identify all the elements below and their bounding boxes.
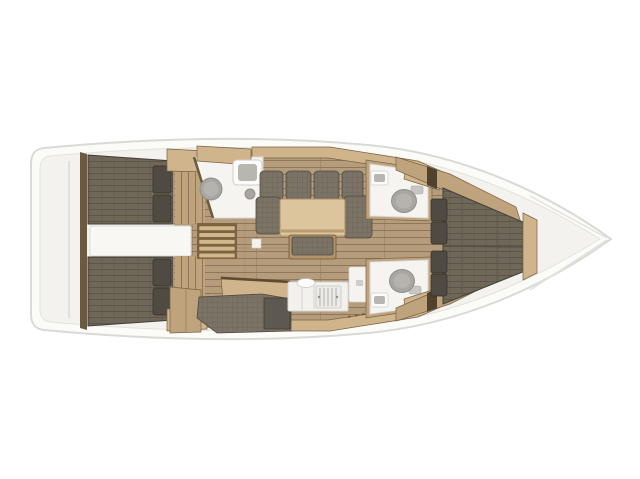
engine-compartment-box — [90, 226, 191, 256]
dark-hatch — [264, 298, 290, 329]
pillow — [431, 222, 447, 244]
fridge-handle — [356, 280, 363, 286]
companionway-ladder — [197, 223, 237, 259]
sofa-back-cushion — [314, 171, 339, 200]
berth-foot-trim — [523, 213, 537, 280]
shower-sink-bowl — [204, 182, 219, 197]
pillow — [431, 274, 447, 296]
door-post-top — [427, 166, 437, 189]
pillow — [153, 259, 171, 286]
yacht-layout-canvas — [0, 0, 640, 479]
toilet-bowl — [396, 194, 413, 209]
pillow — [153, 195, 171, 222]
sofa-back-cushion — [260, 171, 283, 200]
head-basin-bowl — [374, 296, 385, 304]
stern-bulkhead — [80, 152, 87, 330]
basin-bowl — [238, 164, 257, 181]
galley-cabinet — [170, 287, 201, 333]
bench-cushion — [292, 237, 333, 255]
head-basin-bowl — [374, 174, 385, 182]
floor-hatch — [252, 239, 261, 248]
pillow — [431, 199, 447, 221]
knob — [245, 189, 255, 199]
yacht-layout-figure — [0, 0, 640, 479]
pillow — [431, 251, 447, 273]
toilet-bowl — [394, 274, 411, 289]
galley-sink — [297, 279, 315, 288]
sofa-left-cushion — [256, 197, 281, 234]
sofa-back-cushion — [286, 171, 311, 200]
